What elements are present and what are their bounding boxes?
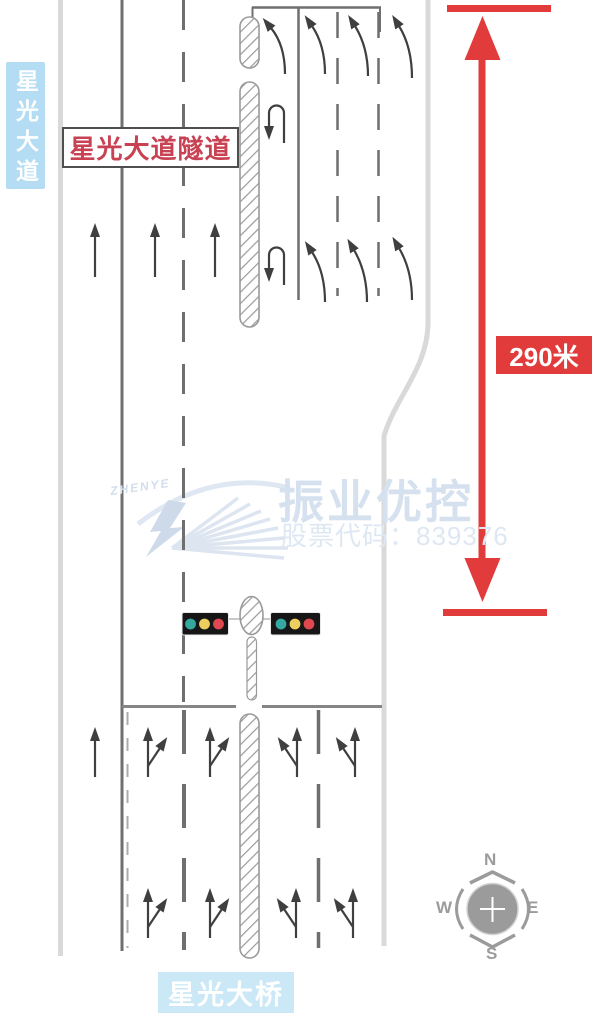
measure-cap-bottom (443, 609, 547, 616)
distance-label: 290米 (496, 336, 592, 374)
compass-rose (457, 872, 529, 947)
road-name-label: 星光大道 (6, 62, 45, 189)
merge-left-arrow (312, 252, 325, 302)
red-light (304, 619, 315, 630)
compass-label-north: N (484, 850, 496, 870)
merge-left-arrow (399, 26, 412, 78)
median-islands (240, 17, 259, 958)
merge-left-arrow (271, 28, 285, 74)
traffic-light-right (271, 613, 321, 636)
merge-left-arrow (354, 250, 367, 302)
measure-arrowhead-down (465, 558, 501, 602)
signal-assembly (182, 597, 321, 701)
green-light (185, 619, 196, 630)
compass-label-south: S (486, 944, 497, 964)
measure-arrowhead-up (465, 16, 501, 60)
watermark-logo (138, 483, 290, 558)
merge-left-arrow (355, 26, 368, 76)
compass-label-east: E (527, 898, 538, 918)
measure-cap-top (447, 5, 551, 12)
median-island-south (240, 714, 259, 958)
merge-left-arrow (399, 248, 412, 300)
traffic-diagram-canvas: 星光大道 星光大道隧道 290米 星光大桥 ZHENYE 振业优控 股票代码：8… (0, 0, 600, 1017)
u-turn-arrow (269, 106, 284, 143)
traffic-light-left (182, 613, 229, 636)
measure-shaft (479, 48, 486, 563)
yellow-light (290, 619, 301, 630)
compass-chevron-north (470, 872, 515, 883)
tunnel-label: 星光大道隧道 (62, 127, 239, 168)
signal-pole-head (240, 597, 263, 635)
watermark-stock-code: 股票代码：839376 (281, 516, 509, 553)
merge-left-arrow (312, 26, 325, 74)
signal-pole (247, 637, 257, 700)
median-island-top (240, 17, 259, 68)
yellow-light (199, 619, 210, 630)
u-turn-arrow (269, 248, 284, 286)
green-light (276, 619, 287, 630)
compass-chevron-west (457, 889, 464, 929)
compass-label-west: W (436, 898, 452, 918)
bridge-label: 星光大桥 (158, 972, 294, 1013)
median-island-long (240, 82, 259, 327)
red-light (213, 619, 224, 630)
